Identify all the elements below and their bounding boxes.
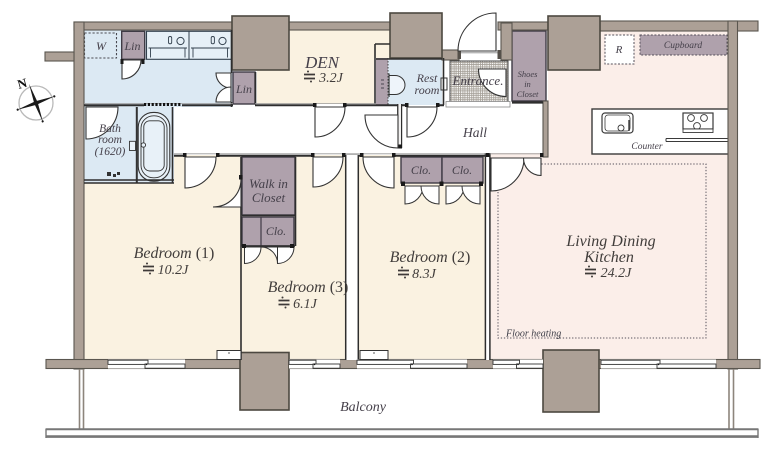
svg-text:Lin: Lin	[235, 82, 252, 96]
svg-text:(1620): (1620)	[95, 146, 126, 158]
svg-text:8.3J: 8.3J	[412, 267, 437, 282]
svg-text:Lin: Lin	[123, 39, 140, 53]
svg-text:Living Dining: Living Dining	[565, 233, 655, 250]
svg-text:R: R	[615, 44, 623, 56]
svg-text:room: room	[415, 83, 440, 97]
svg-text:Clo.: Clo.	[411, 163, 431, 177]
svg-text:Balcony: Balcony	[340, 400, 387, 415]
svg-text:Clo.: Clo.	[266, 224, 286, 238]
svg-text:Bedroom (3): Bedroom (3)	[268, 279, 349, 296]
svg-text:Walk in: Walk in	[249, 176, 288, 191]
svg-text:Closet: Closet	[252, 190, 286, 205]
svg-text:DEN: DEN	[304, 53, 341, 72]
svg-text:Bedroom (2): Bedroom (2)	[390, 249, 471, 266]
svg-text:10.2J: 10.2J	[158, 263, 190, 278]
svg-text:Shoes: Shoes	[518, 69, 539, 79]
svg-text:Entrance.: Entrance.	[452, 73, 504, 88]
svg-text:Floor heating: Floor heating	[505, 329, 561, 340]
svg-text:Kitchen: Kitchen	[583, 249, 634, 266]
svg-text:Hall: Hall	[462, 125, 487, 140]
svg-text:24.2J: 24.2J	[601, 266, 633, 281]
svg-text:3.2J: 3.2J	[318, 71, 344, 86]
svg-text:6.1J: 6.1J	[293, 297, 318, 312]
svg-text:room: room	[98, 134, 122, 146]
svg-text:Closet: Closet	[517, 89, 539, 99]
svg-text:W: W	[96, 39, 107, 53]
svg-text:Bedroom (1): Bedroom (1)	[134, 245, 215, 262]
svg-text:Cupboard: Cupboard	[664, 41, 702, 51]
svg-text:Clo.: Clo.	[452, 163, 472, 177]
svg-text:Counter: Counter	[631, 142, 662, 152]
svg-text:in: in	[524, 79, 531, 89]
